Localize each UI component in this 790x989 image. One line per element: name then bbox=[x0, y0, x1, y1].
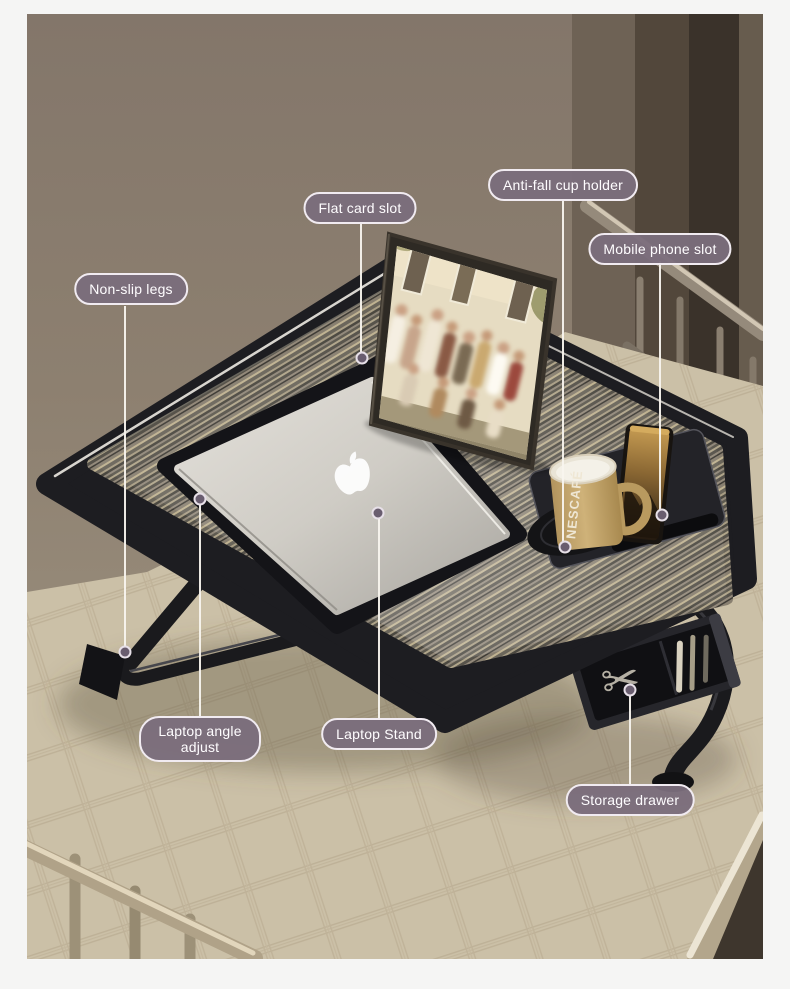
callout-dot-laptop-angle-adjust bbox=[194, 493, 207, 506]
callout-label-laptop-stand: Laptop Stand bbox=[321, 718, 437, 750]
callout-line-flat-card-slot bbox=[360, 224, 362, 353]
callout-dot-mobile-phone-slot bbox=[656, 509, 669, 522]
pen bbox=[676, 641, 683, 693]
callout-line-laptop-angle-adjust bbox=[199, 504, 201, 716]
callout-label-mobile-phone-slot: Mobile phone slot bbox=[588, 233, 731, 265]
callout-dot-storage-drawer bbox=[624, 684, 637, 697]
callout-dot-non-slip-legs bbox=[119, 646, 132, 659]
callout-dot-flat-card-slot bbox=[356, 352, 369, 365]
product-annotation-image: ✂ bbox=[0, 0, 790, 989]
callout-line-anti-fall-cup-holder bbox=[562, 201, 564, 542]
callout-label-storage-drawer: Storage drawer bbox=[566, 784, 695, 816]
photo-frame: ✂ bbox=[27, 14, 763, 959]
callout-dot-anti-fall-cup-holder bbox=[559, 541, 572, 554]
callout-line-storage-drawer bbox=[629, 695, 631, 784]
pen bbox=[689, 635, 695, 691]
tool bbox=[703, 635, 709, 683]
callout-line-mobile-phone-slot bbox=[659, 261, 661, 510]
callout-line-non-slip-legs bbox=[124, 306, 126, 647]
callout-line-laptop-stand bbox=[378, 518, 380, 718]
callout-label-non-slip-legs: Non-slip legs bbox=[74, 273, 188, 305]
callout-label-laptop-angle-adjust: Laptop angle adjust bbox=[139, 716, 261, 762]
callout-label-anti-fall-cup-holder: Anti-fall cup holder bbox=[488, 169, 638, 201]
scene-svg: ✂ bbox=[27, 14, 763, 959]
callout-dot-laptop-stand bbox=[372, 507, 385, 520]
callout-label-flat-card-slot: Flat card slot bbox=[304, 192, 417, 224]
